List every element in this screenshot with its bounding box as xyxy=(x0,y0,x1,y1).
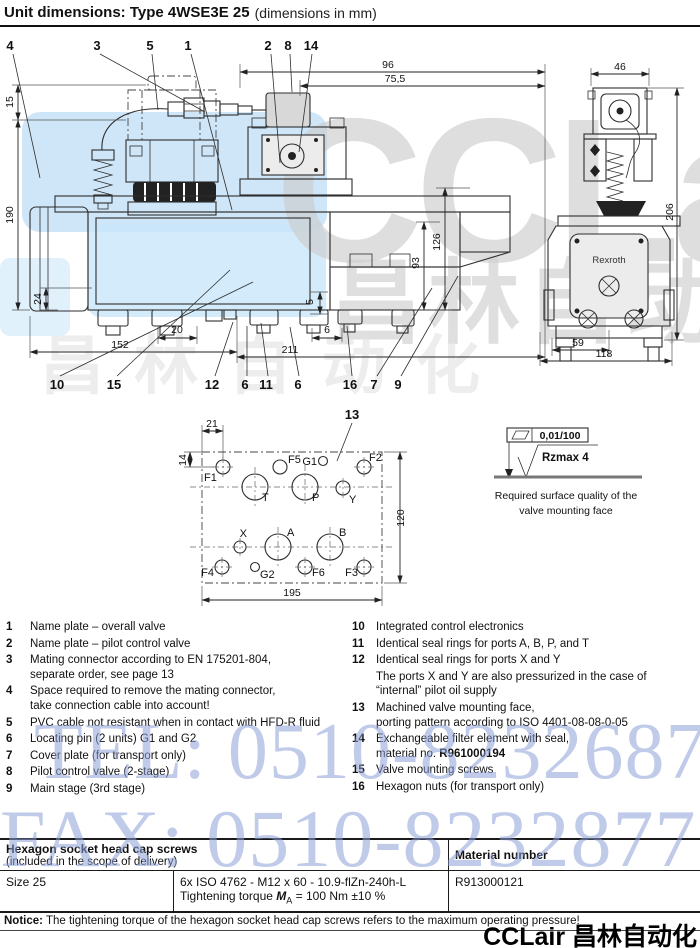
legend-item: 10Integrated control electronics xyxy=(352,620,698,635)
callout-9: 9 xyxy=(394,377,401,392)
legend-item: 12Identical seal rings for ports X and Y xyxy=(352,653,698,668)
callout-1: 1 xyxy=(184,38,191,53)
legend-item: 7Cover plate (for transport only) xyxy=(6,749,350,764)
legend-item-text: Pilot control valve (2-stage) xyxy=(30,765,350,780)
spec-line: 6x ISO 4762 - M12 x 60 - 10.9-flZn-240h-… xyxy=(180,875,442,889)
legend-item-text: Cover plate (for transport only) xyxy=(30,749,350,764)
legend-item-text: The ports X and Y are also pressurized i… xyxy=(376,670,698,699)
page-title-bold: Unit dimensions: Type 4WSE3E 25 xyxy=(4,4,250,21)
legend-item: 4Space required to remove the mating con… xyxy=(6,684,350,713)
legend-item: 9Main stage (3rd stage) xyxy=(6,782,350,797)
legend-item-text: Main stage (3rd stage) xyxy=(30,782,350,797)
dim-206: 206 xyxy=(664,203,676,221)
legend-item: 3Mating connector according to EN 175201… xyxy=(6,653,350,682)
dim-24: 24 xyxy=(32,293,44,305)
dim-15: 15 xyxy=(4,96,16,108)
callout-10: 10 xyxy=(50,377,64,392)
callout-2: 2 xyxy=(264,38,271,53)
front-view: Rexroth 46 xyxy=(540,61,684,366)
callout-5: 5 xyxy=(146,38,153,53)
legend-item: The ports X and Y are also pressurized i… xyxy=(352,670,698,699)
dim-96: 96 xyxy=(382,59,394,71)
port-a: A xyxy=(287,527,295,539)
table-row: Size 25 6x ISO 4762 - M12 x 60 - 10.9-fl… xyxy=(0,871,700,911)
legend-item: 1Name plate – overall valve xyxy=(6,620,350,635)
legend-item: 13Machined valve mounting face, porting … xyxy=(352,701,698,730)
legend-item-text: Identical seal rings for ports A, B, P, … xyxy=(376,637,698,652)
legend-item-text: Identical seal rings for ports X and Y xyxy=(376,653,698,668)
port-b: B xyxy=(339,527,346,539)
port-t: T xyxy=(262,492,269,504)
port-f3: F3 xyxy=(345,567,358,579)
legend-item-text: Name plate – pilot control valve xyxy=(30,637,350,652)
port-x: X xyxy=(240,528,248,540)
legend-item: 15Valve mounting screws xyxy=(352,763,698,778)
legend-item-text: Space required to remove the mating conn… xyxy=(30,684,350,713)
datasheet-page: CCLair 昌林自动化 昌林自动化 Unit dimensions: Type… xyxy=(0,0,700,948)
flatness-value: 0,01/100 xyxy=(540,430,581,442)
page-title: Unit dimensions: Type 4WSE3E 25 (dimensi… xyxy=(0,0,700,27)
callout-7: 7 xyxy=(370,377,377,392)
callout-12: 12 xyxy=(205,377,219,392)
cell-size: Size 25 xyxy=(0,871,174,911)
screws-table: Hexagon socket head cap screws (included… xyxy=(0,838,700,913)
dim-93: 93 xyxy=(410,257,422,269)
dim-46: 46 xyxy=(614,61,626,73)
legend-item-text: Exchangeable filter element with seal, m… xyxy=(376,732,698,761)
dimension-drawing: 96 75,5 15 190 24 126 93 152 20 211 5 6 … xyxy=(0,30,700,400)
legend-item: 8Pilot control valve (2-stage) xyxy=(6,765,350,780)
cell-material-number: R913000121 xyxy=(449,871,700,911)
legend-item-text: Valve mounting screws xyxy=(376,763,698,778)
port-f1: F1 xyxy=(204,472,217,484)
surface-caption-line2: valve mounting face xyxy=(519,505,613,517)
callout-16: 16 xyxy=(343,377,357,392)
port-f5: F5 xyxy=(288,454,301,466)
porting-pattern: F1 F5 G1 F2 T P Y X A B F4 G2 F6 F3 13 2… xyxy=(177,407,407,606)
legend-item-text: Mating connector according to EN 175201-… xyxy=(30,653,350,682)
port-f2: F2 xyxy=(369,452,382,464)
porting-pattern-drawing: F1 F5 G1 F2 T P Y X A B F4 G2 F6 F3 13 2… xyxy=(0,395,700,630)
legend-item-text: Name plate – overall valve xyxy=(30,620,350,635)
brand-rexroth: Rexroth xyxy=(592,255,625,266)
port-f4: F4 xyxy=(201,567,214,579)
legend-item-text: Integrated control electronics xyxy=(376,620,698,635)
cell-spec: 6x ISO 4762 - M12 x 60 - 10.9-flZn-240h-… xyxy=(174,871,449,911)
callout-3: 3 xyxy=(93,38,100,53)
surface-caption-line1: Required surface quality of the xyxy=(495,490,638,502)
dim-75-5: 75,5 xyxy=(385,73,406,85)
dim-211: 211 xyxy=(282,344,299,356)
table-header-screws: Hexagon socket head cap screws (included… xyxy=(0,840,449,870)
callout-13: 13 xyxy=(345,407,359,422)
dim-120: 120 xyxy=(395,509,407,527)
dim-195: 195 xyxy=(283,587,301,599)
callout-11: 11 xyxy=(259,377,273,392)
legend-item: 11Identical seal rings for ports A, B, P… xyxy=(352,637,698,652)
side-view: 96 75,5 15 190 24 126 93 152 20 211 5 6 … xyxy=(4,38,545,392)
dim-59: 59 xyxy=(572,337,584,349)
legend-item: 5PVC cable not resistant when in contact… xyxy=(6,716,350,731)
footer-brand: CCLair 昌林自动化 xyxy=(483,917,697,948)
surface-quality-symbol: 0,01/100 Rzmax 4 Required surface qualit… xyxy=(494,428,642,517)
dim-5: 5 xyxy=(304,299,316,305)
dim-190: 190 xyxy=(4,206,16,224)
dim-6: 6 xyxy=(324,324,330,336)
table-header-material: Material number xyxy=(449,840,700,870)
callout-4: 4 xyxy=(6,38,14,53)
dim-152: 152 xyxy=(111,339,129,351)
port-y: Y xyxy=(349,494,357,506)
page-title-sub: (dimensions in mm) xyxy=(255,5,377,21)
legend-item: 14Exchangeable filter element with seal,… xyxy=(352,732,698,761)
roughness-value: Rzmax 4 xyxy=(542,452,589,464)
legend-right-column: 10Integrated control electronics 11Ident… xyxy=(352,620,698,797)
table-header-row: Hexagon socket head cap screws (included… xyxy=(0,840,700,871)
dim-20: 20 xyxy=(171,324,183,336)
dim-126: 126 xyxy=(431,233,443,251)
legend-item-text: Machined valve mounting face, porting pa… xyxy=(376,701,698,730)
callout-6a: 6 xyxy=(241,377,248,392)
legend-item-text: Hexagon nuts (for transport only) xyxy=(376,780,698,795)
callout-15: 15 xyxy=(107,377,121,392)
callout-14: 14 xyxy=(304,38,319,53)
legend-item: 6Locating pin (2 units) G1 and G2 xyxy=(6,732,350,747)
dim-14: 14 xyxy=(177,454,189,466)
legend-item-text: PVC cable not resistant when in contact … xyxy=(30,716,350,731)
legend-left-column: 1Name plate – overall valve 2Name plate … xyxy=(6,620,350,799)
legend-item-text: Locating pin (2 units) G1 and G2 xyxy=(30,732,350,747)
port-g1: G1 xyxy=(302,456,317,468)
torque-line: Tightening torque MA = 100 Nm ±10 % xyxy=(180,889,442,905)
dim-21: 21 xyxy=(206,418,218,430)
callout-6b: 6 xyxy=(294,377,301,392)
legend-item: 16Hexagon nuts (for transport only) xyxy=(352,780,698,795)
port-f6: F6 xyxy=(312,567,325,579)
port-p: P xyxy=(312,492,319,504)
port-g2: G2 xyxy=(260,569,275,581)
callout-8: 8 xyxy=(284,38,291,53)
dim-118: 118 xyxy=(596,348,613,360)
legend-item: 2Name plate – pilot control valve xyxy=(6,637,350,652)
